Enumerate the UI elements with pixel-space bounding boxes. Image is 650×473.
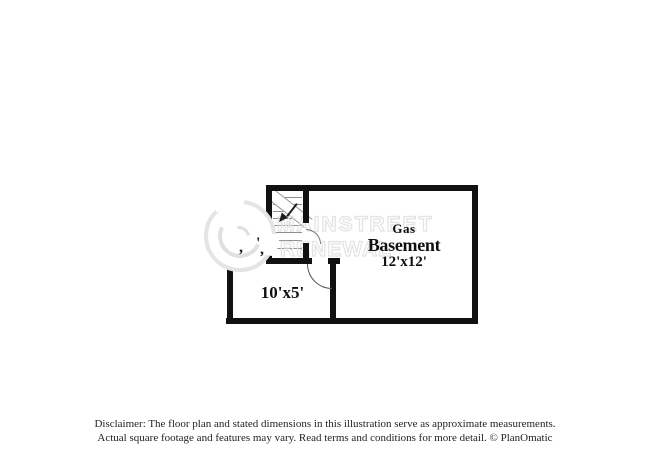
wall-stair-right-upper xyxy=(303,191,309,223)
logo-ring-gap xyxy=(266,233,280,257)
mainstreet-renewal-circle-logo xyxy=(204,200,276,272)
wall-stair-bottom xyxy=(266,258,312,264)
wall-outer-top xyxy=(266,185,478,191)
basement-dimensions: 12'x12' xyxy=(329,255,479,271)
logo-ring-gap xyxy=(213,194,245,213)
wall-outer-bottom xyxy=(226,318,478,324)
disclaimer-text: Disclaimer: The floor plan and stated di… xyxy=(0,417,650,445)
basement-sublabel: Gas xyxy=(329,222,479,236)
closet-dimension-fragment: , xyxy=(260,242,264,258)
closet-dimension-fragment: , xyxy=(239,240,243,256)
utility-room-dimensions: 10'x5' xyxy=(245,283,320,303)
floorplan-image: MAINSTREET RENEWAL , ' , Gas Basement 12… xyxy=(0,0,650,473)
disclaimer-line1: Disclaimer: The floor plan and stated di… xyxy=(0,417,650,431)
disclaimer-line2: Actual square footage and features may v… xyxy=(0,431,650,445)
basement-room-label: Gas Basement 12'x12' xyxy=(329,222,479,270)
basement-name: Basement xyxy=(329,236,479,255)
